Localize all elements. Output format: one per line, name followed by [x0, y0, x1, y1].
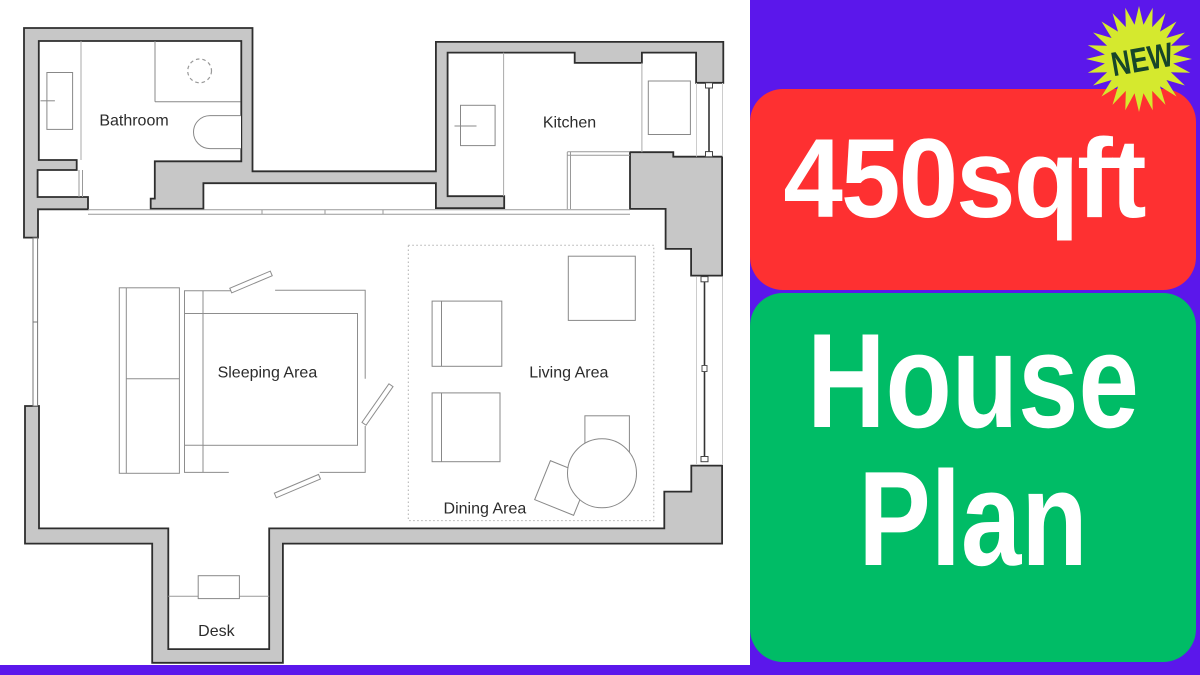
- svg-text:Living Area: Living Area: [529, 365, 608, 382]
- svg-text:Desk: Desk: [198, 623, 235, 640]
- svg-text:Sleeping Area: Sleeping Area: [218, 365, 318, 382]
- svg-text:Dining Area: Dining Area: [444, 501, 527, 518]
- svg-text:Bathroom: Bathroom: [99, 113, 168, 130]
- svg-text:Kitchen: Kitchen: [543, 115, 596, 132]
